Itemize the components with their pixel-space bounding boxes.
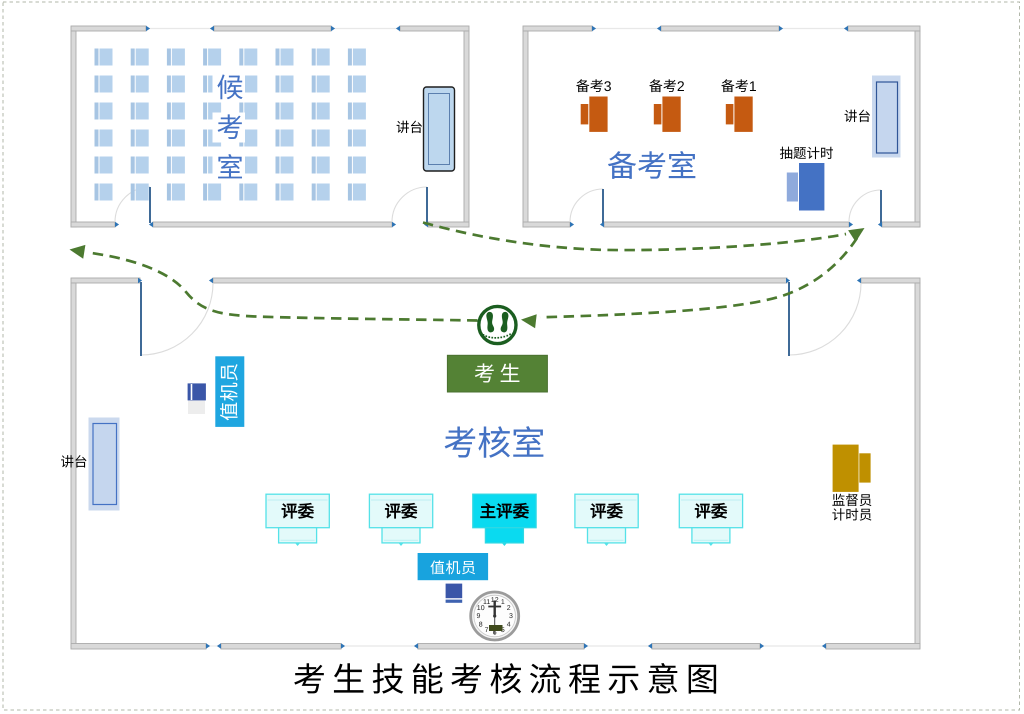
svg-text:考生: 考生 [474,363,525,386]
svg-text:1: 1 [501,599,505,606]
svg-text:值机员: 值机员 [430,560,477,577]
svg-text:值机员: 值机员 [220,362,241,421]
svg-text:3: 3 [509,613,513,620]
svg-text:抽题计时: 抽题计时 [780,146,834,161]
svg-text:候: 候 [217,73,244,103]
svg-text:考生技能考核流程示意图: 考生技能考核流程示意图 [293,661,725,698]
svg-text:计时员: 计时员 [832,508,873,523]
svg-text:主评委: 主评委 [480,502,530,521]
svg-text:备考2: 备考2 [649,78,685,94]
svg-text:室: 室 [217,153,244,183]
svg-text:评委: 评委 [590,502,624,521]
svg-text:2: 2 [507,605,511,612]
svg-text:讲台: 讲台 [61,455,88,470]
svg-text:8: 8 [479,621,483,628]
svg-text:7: 7 [485,627,489,634]
svg-text:监督员: 监督员 [832,493,873,508]
svg-text:考核室: 考核室 [443,425,545,463]
svg-text:备考室: 备考室 [607,151,697,184]
svg-text:备考3: 备考3 [576,78,612,94]
svg-text:评委: 评委 [281,502,315,521]
svg-text:考: 考 [217,113,244,143]
svg-text:讲台: 讲台 [396,120,423,135]
svg-text:11: 11 [483,599,490,606]
svg-text:讲台: 讲台 [844,109,871,124]
svg-text:评委: 评委 [694,502,728,521]
svg-text:备考1: 备考1 [721,78,757,94]
svg-text:评委: 评委 [385,502,419,521]
svg-text:9: 9 [477,613,481,620]
svg-text:4: 4 [507,621,511,628]
